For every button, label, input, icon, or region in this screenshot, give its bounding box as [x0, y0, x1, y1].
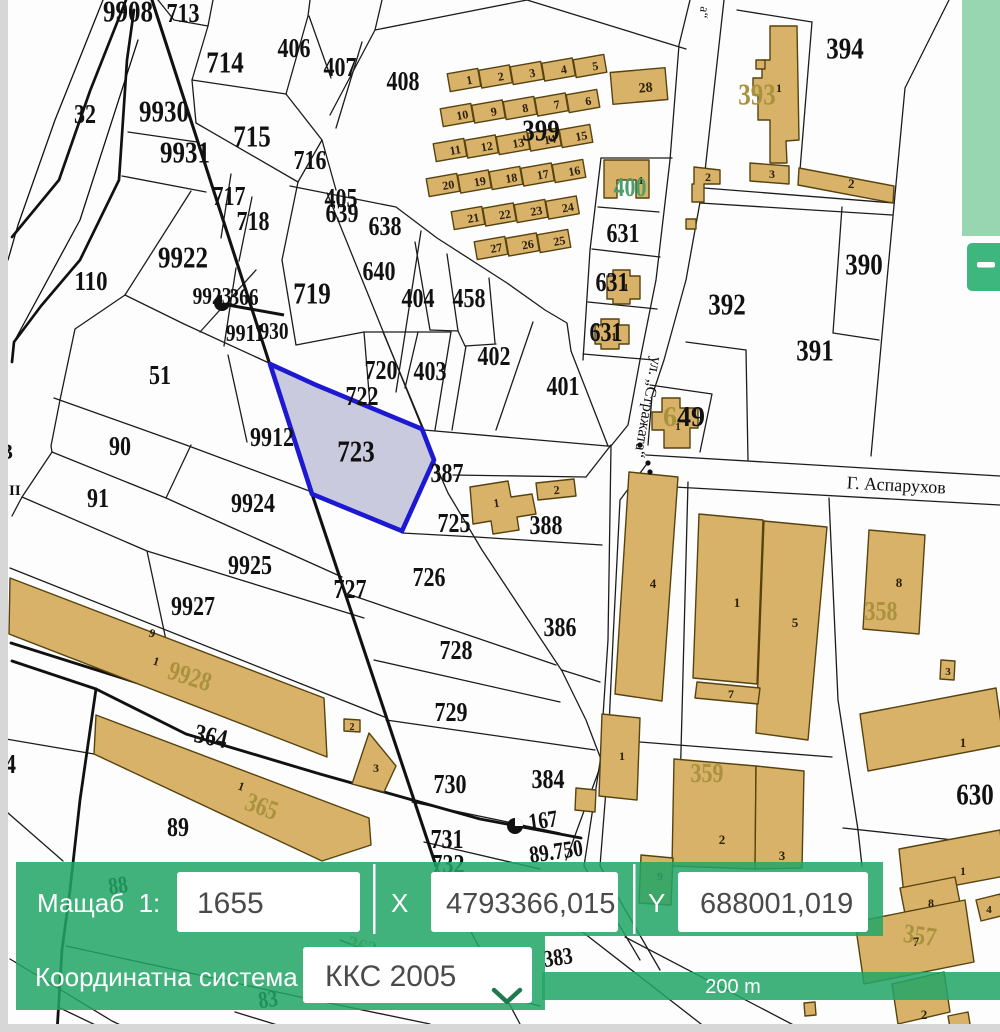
svg-text:89: 89	[167, 812, 189, 842]
svg-text:3: 3	[373, 761, 379, 775]
svg-text:384: 384	[532, 764, 565, 794]
svg-text:22: 22	[498, 207, 512, 223]
svg-text:2: 2	[705, 170, 711, 184]
svg-text:24: 24	[561, 200, 575, 216]
svg-text:11: 11	[449, 142, 463, 158]
svg-text:9931: 9931	[160, 135, 210, 170]
svg-text:930: 930	[259, 319, 288, 345]
svg-text:4: 4	[986, 904, 992, 916]
svg-text:407: 407	[324, 52, 357, 82]
svg-text:4: 4	[650, 576, 657, 591]
svg-text:728: 728	[440, 635, 473, 665]
svg-text:725: 725	[438, 508, 471, 538]
svg-text:1: 1	[734, 595, 741, 610]
svg-text:91: 91	[87, 483, 109, 513]
svg-text:631: 631	[596, 267, 629, 297]
svg-text:Y: Y	[648, 888, 665, 918]
svg-text:391: 391	[796, 333, 834, 368]
svg-text:730: 730	[434, 769, 467, 799]
svg-text:15: 15	[574, 128, 588, 144]
svg-text:357: 357	[902, 918, 939, 952]
svg-text:9923: 9923	[193, 284, 232, 310]
svg-text:392: 392	[708, 287, 746, 322]
svg-text:19: 19	[473, 174, 487, 190]
svg-text:2: 2	[921, 1007, 928, 1022]
svg-text:1: 1	[619, 749, 625, 763]
svg-text:1: 1	[960, 864, 966, 878]
svg-text:640: 640	[363, 256, 396, 286]
svg-text:49: 49	[677, 402, 705, 433]
svg-text:12: 12	[480, 139, 494, 155]
svg-text:2: 2	[350, 722, 355, 733]
svg-text:9925: 9925	[228, 550, 272, 580]
svg-text:1: 1	[960, 735, 967, 750]
svg-text:688001,019: 688001,019	[700, 888, 853, 920]
svg-text:399: 399	[522, 113, 560, 148]
svg-text:631: 631	[590, 317, 623, 347]
svg-text:9922: 9922	[158, 240, 208, 275]
svg-text:383: 383	[542, 943, 574, 973]
svg-text:9912: 9912	[250, 422, 294, 452]
svg-text:718: 718	[237, 206, 270, 236]
svg-text:713: 713	[167, 0, 200, 28]
svg-text:ККС 2005: ККС 2005	[325, 960, 456, 993]
svg-text:1: 1	[776, 81, 782, 95]
svg-text:26: 26	[521, 237, 535, 253]
svg-text:4793366,015: 4793366,015	[446, 888, 615, 920]
svg-text:408: 408	[387, 66, 420, 96]
svg-text:20: 20	[441, 177, 455, 193]
svg-text:639: 639	[326, 198, 359, 228]
svg-text:9924: 9924	[231, 488, 275, 518]
svg-text:8: 8	[928, 896, 934, 910]
svg-text:404: 404	[402, 283, 435, 313]
svg-text:3: 3	[769, 167, 775, 181]
svg-text:387: 387	[431, 458, 464, 488]
svg-text:X: X	[391, 888, 408, 918]
svg-text:167: 167	[527, 806, 559, 836]
svg-text:3: 3	[945, 666, 951, 678]
svg-text:32: 32	[74, 99, 96, 129]
svg-text:359: 359	[691, 758, 724, 788]
svg-text:458: 458	[453, 283, 486, 313]
svg-text:Координатна система: Координатна система	[35, 962, 298, 992]
svg-text:388: 388	[530, 510, 563, 540]
svg-text:2: 2	[719, 832, 726, 847]
svg-text:1655: 1655	[197, 887, 264, 920]
svg-text:358: 358	[865, 596, 898, 626]
svg-text:18: 18	[504, 170, 518, 186]
svg-text:21: 21	[466, 210, 480, 226]
svg-text:631: 631	[607, 218, 640, 248]
svg-text:400: 400	[614, 172, 647, 202]
svg-text:2: 2	[848, 176, 855, 191]
svg-text:722: 722	[346, 381, 379, 411]
svg-text:2: 2	[553, 483, 560, 497]
svg-text:727: 727	[334, 574, 367, 604]
svg-text:726: 726	[413, 562, 446, 592]
svg-text:9908: 9908	[103, 0, 153, 29]
svg-text:390: 390	[845, 247, 883, 282]
svg-text:9930: 9930	[139, 94, 189, 129]
svg-text:401: 401	[547, 371, 580, 401]
svg-text:27: 27	[489, 240, 503, 256]
svg-text:394: 394	[826, 31, 864, 66]
svg-text:II: II	[9, 483, 21, 499]
svg-text:200 m: 200 m	[705, 976, 761, 998]
svg-text:9927: 9927	[171, 591, 215, 621]
svg-text:28: 28	[638, 80, 653, 96]
svg-text:715: 715	[233, 119, 271, 154]
svg-text:Мащаб 1:: Мащаб 1:	[37, 888, 160, 918]
svg-text:403: 403	[414, 356, 447, 386]
svg-text:638: 638	[369, 211, 402, 241]
svg-text:3: 3	[779, 848, 786, 863]
svg-text:51: 51	[149, 360, 171, 390]
svg-text:366: 366	[229, 285, 258, 311]
svg-text:6: 6	[663, 402, 677, 433]
svg-text:17: 17	[536, 167, 550, 183]
svg-text:714: 714	[206, 45, 244, 80]
svg-text:630: 630	[956, 777, 994, 812]
svg-text:406: 406	[278, 33, 311, 63]
svg-text:729: 729	[435, 697, 468, 727]
svg-text:90: 90	[109, 431, 131, 461]
svg-text:25: 25	[552, 233, 566, 249]
svg-text:723: 723	[337, 434, 375, 469]
svg-text:8: 8	[896, 575, 903, 590]
svg-text:716: 716	[294, 145, 327, 175]
svg-text:7: 7	[728, 687, 734, 701]
svg-text:23: 23	[529, 203, 543, 219]
svg-text:16: 16	[567, 163, 581, 179]
svg-text:110: 110	[75, 266, 108, 296]
svg-text:5: 5	[792, 615, 799, 630]
svg-text:393: 393	[738, 77, 776, 112]
svg-text:402: 402	[478, 341, 511, 371]
svg-text:386: 386	[544, 612, 577, 642]
svg-text:719: 719	[293, 276, 331, 311]
svg-text:10: 10	[455, 107, 469, 123]
